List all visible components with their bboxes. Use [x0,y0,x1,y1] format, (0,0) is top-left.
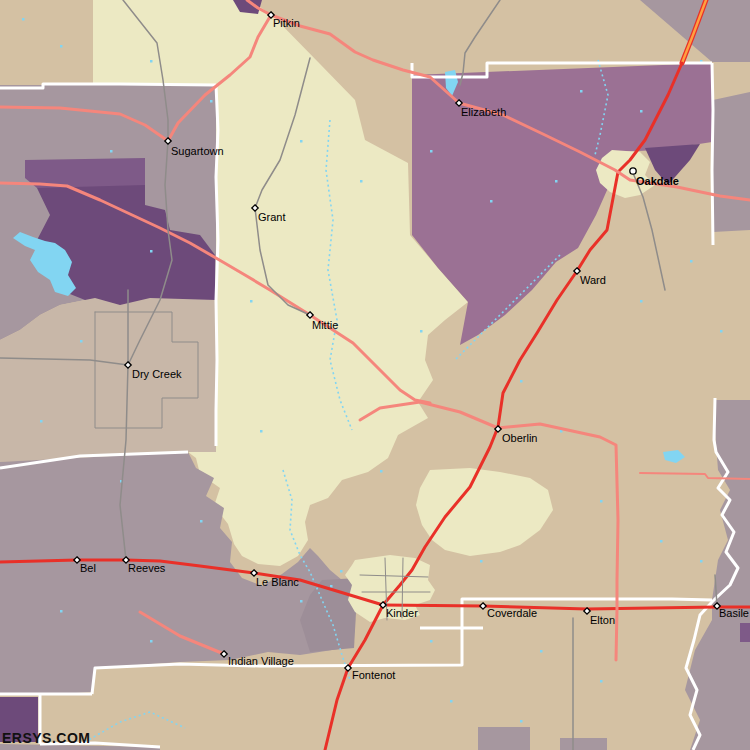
water-dot [560,430,563,433]
water-dot [260,430,263,433]
water-dot [640,300,643,303]
water-dot [380,470,383,473]
water-dot [330,585,333,588]
water-dot [490,200,493,203]
watermark: ERSYS.COM [2,730,91,746]
water-dot [360,180,363,183]
water-dot [540,650,543,653]
town-marker-Oakdale [630,168,636,174]
boundary-parish-west-vertical [216,85,218,446]
water-dot [480,560,483,563]
water-dot [520,720,523,723]
water-dot [300,140,303,143]
town-label-Bel: Bel [80,562,96,574]
town-label-Coverdale: Coverdale [487,607,537,619]
town-label-Kinder: Kinder [386,607,418,619]
town-label-Elton: Elton [590,614,615,626]
town-label-Elizabeth: Elizabeth [461,106,506,118]
region-bottom-patch-mauve-2 [560,738,607,750]
town-label-Basile: Basile [719,607,749,619]
water-dot [250,300,253,303]
boundary-right-vertical [712,63,713,245]
water-dot [700,560,703,563]
water-dot [420,330,423,333]
water-dot [150,60,153,63]
town-label-Fontenot: Fontenot [352,669,395,681]
map-svg: PitkinSugartownGrantElizabethOakdaleWard… [0,0,750,750]
water-dot [430,640,433,643]
water-dot [640,110,643,113]
water-dot [660,540,663,543]
water-dot [580,90,583,93]
town-label-Oberlin: Oberlin [502,432,537,444]
water-dot [22,18,25,21]
water-dot [200,520,203,523]
water-dot [600,680,603,683]
water-dot [210,100,213,103]
water-dot [80,340,83,343]
water-dot [340,570,343,573]
town-label-Oakdale: Oakdale [636,175,679,187]
water-dot [450,700,453,703]
town-label-Pitkin: Pitkin [273,17,300,29]
town-label-Reeves: Reeves [128,562,166,574]
town-label-Mittie: Mittie [312,319,338,331]
water-dot [40,420,43,423]
water-dot [430,150,433,153]
map-canvas: PitkinSugartownGrantElizabethOakdaleWard… [0,0,750,750]
town-label-Dry Creek: Dry Creek [132,368,182,380]
water-dot [300,600,303,603]
region-basile-purple-patch [740,623,750,642]
water-dot [555,180,558,183]
water-dot [110,150,113,153]
region-bottom-patch-mauve-1 [478,727,530,750]
water-dot [600,500,603,503]
region-right-strip-mauve [713,92,750,232]
town-label-Ward: Ward [580,274,606,286]
water-dot [520,380,523,383]
water-dot [720,330,723,333]
water-dot [150,250,153,253]
water-dot [60,45,63,48]
town-label-Indian Village: Indian Village [228,655,294,667]
town-label-Le Blanc: Le Blanc [256,576,299,588]
water-dot [150,640,153,643]
water-dot [60,610,63,613]
town-label-Sugartown: Sugartown [171,145,224,157]
region-dry-creek-tan [0,298,216,462]
water-dot [690,260,693,263]
town-label-Grant: Grant [258,211,286,223]
